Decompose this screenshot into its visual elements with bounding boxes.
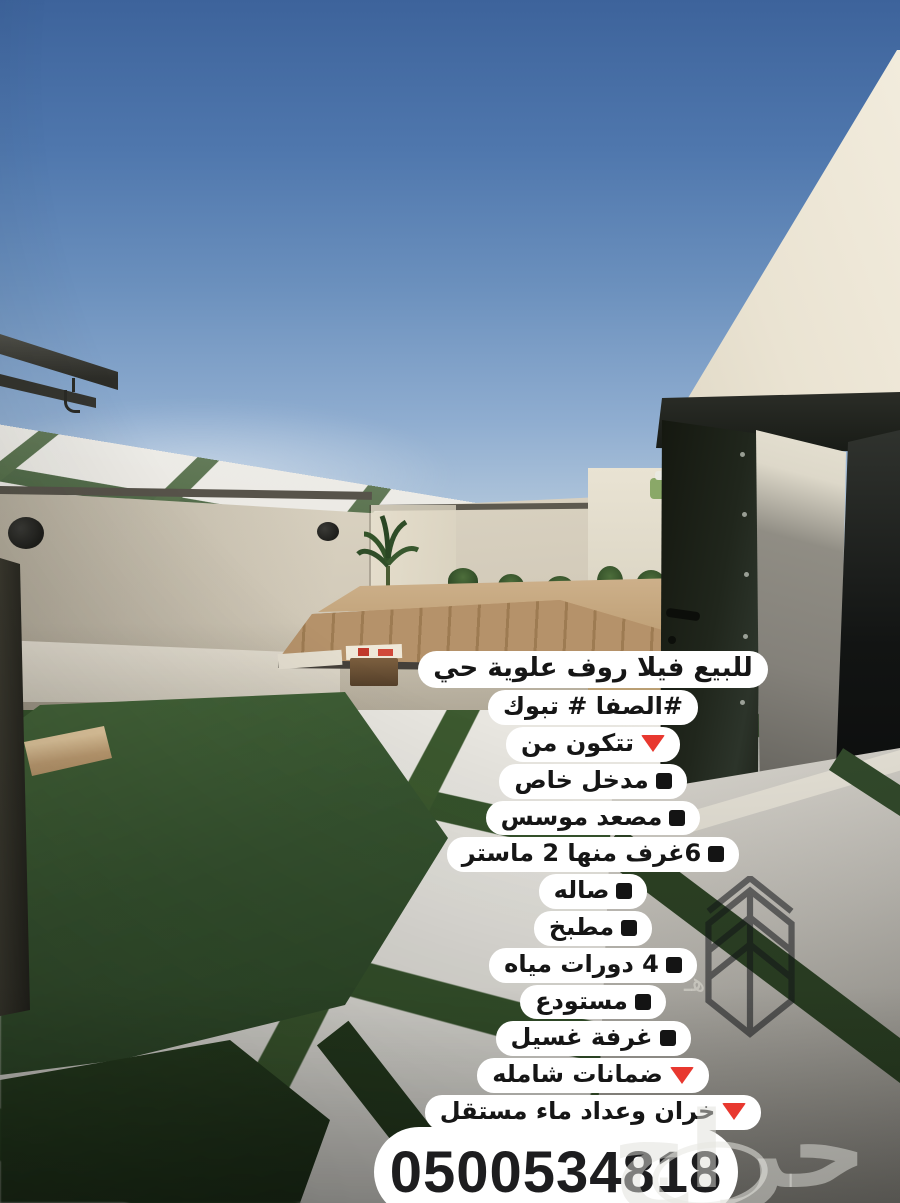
door-handle	[668, 636, 676, 644]
listing-line-pill: مدخل خاص	[499, 764, 686, 799]
black-square-icon	[669, 810, 685, 826]
stool-label	[358, 648, 369, 656]
door-weld-spot	[740, 452, 745, 457]
black-square-icon	[656, 773, 672, 789]
listing-line-text: تتكون من	[521, 729, 634, 757]
black-square-icon	[666, 957, 682, 973]
red-triangle-icon	[641, 735, 665, 752]
listing-line-pill: مطبخ	[534, 911, 652, 946]
listing-line-pill: صاله	[539, 874, 648, 909]
black-square-icon	[708, 846, 724, 862]
black-square-icon	[621, 920, 637, 936]
listing-line-text: مصعد موسس	[501, 803, 663, 831]
door-weld-spot	[744, 572, 749, 577]
listing-line-text: صاله	[554, 876, 610, 904]
black-square-icon	[635, 994, 651, 1010]
red-triangle-icon	[722, 1103, 746, 1120]
listing-line-text: للبيع فيلا روف علوية حي	[433, 653, 753, 683]
phone-number-pill: 0500534818	[374, 1127, 738, 1203]
listing-line-pill: ضمانات شامله	[477, 1058, 709, 1093]
listing-line-text: مستودع	[535, 987, 628, 1015]
listing-line-pill: خران وعداد ماء مستقل	[425, 1095, 762, 1130]
black-square-icon	[616, 883, 632, 899]
listing-line-pill: تتكون من	[506, 727, 680, 762]
listing-line-text: مطبخ	[549, 913, 614, 941]
red-triangle-icon	[670, 1067, 694, 1084]
listing-line-pill: مصعد موسس	[486, 801, 701, 836]
listing-line-text: ضمانات شامله	[492, 1060, 663, 1088]
listing-line-text: 4 دورات مياه	[504, 950, 659, 978]
wall-lamp	[8, 517, 44, 549]
wall-lamp	[317, 522, 339, 541]
listing-line-pill: #الصفا # تبوك	[488, 690, 698, 725]
black-square-icon	[660, 1030, 676, 1046]
listing-line-pill: 6غرف منها 2 ماستر	[447, 837, 739, 872]
door-weld-spot	[743, 634, 748, 639]
listing-line-text: 6غرف منها 2 ماستر	[462, 839, 701, 867]
stool-box	[350, 658, 398, 686]
listing-line-pill: غرفة غسيل	[496, 1021, 691, 1056]
listing-line-pill: للبيع فيلا روف علوية حي	[418, 651, 768, 688]
stool-label	[378, 649, 393, 656]
door-weld-spot	[742, 512, 747, 517]
listing-line-text: #الصفا # تبوك	[503, 692, 683, 720]
listing-line-text: غرفة غسيل	[511, 1023, 653, 1051]
pergola-hook	[64, 390, 80, 413]
listing-line-text: مدخل خاص	[514, 766, 648, 794]
phone-number: 0500534818	[390, 1139, 723, 1203]
listing-line-pill: 4 دورات مياه	[489, 948, 697, 983]
listing-line-text: خران وعداد ماء مستقل	[440, 1097, 716, 1125]
listing-pills: للبيع فيلا روف علوية حي#الصفا # تبوكتتكو…	[420, 651, 766, 1167]
listing-photo: هـ للبيع فيلا روف علوية حي#الصفا # تبوكت…	[0, 0, 900, 1203]
listing-line-pill: مستودع	[520, 985, 666, 1020]
